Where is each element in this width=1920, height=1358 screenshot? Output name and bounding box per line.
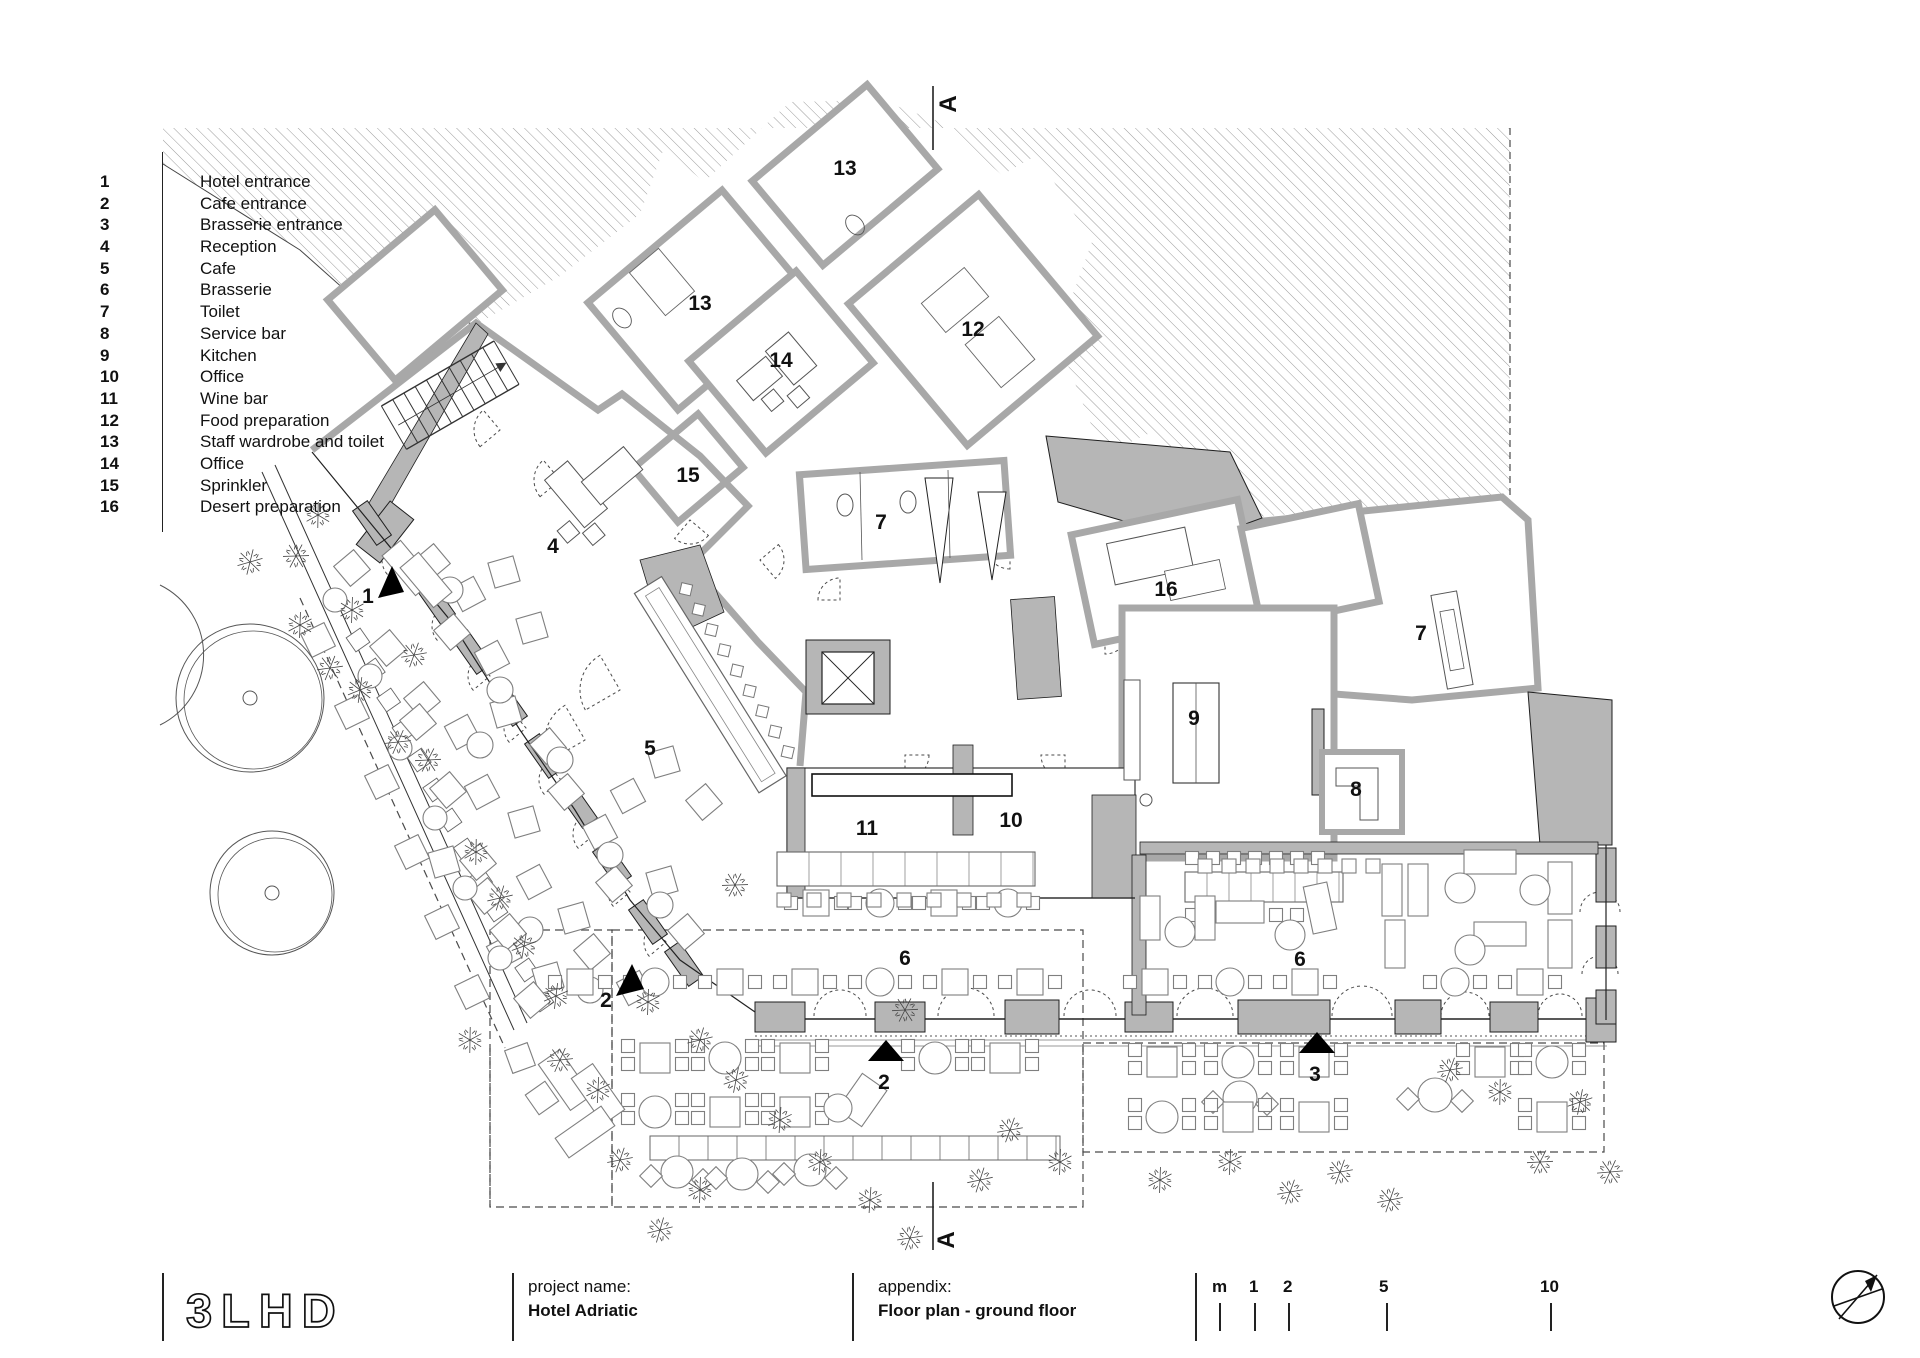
scale-tick — [1254, 1303, 1256, 1331]
legend-number: 3 — [100, 215, 200, 235]
legend-label: Reception — [200, 237, 277, 257]
scale-tick — [1386, 1303, 1388, 1331]
room-label-6-west: 6 — [899, 947, 911, 970]
legend-row: 16Desert preparation — [100, 497, 384, 519]
legend-label: Food preparation — [200, 411, 329, 431]
legend-row: 3Brasserie entrance — [100, 215, 384, 237]
titlebar-divider — [1195, 1273, 1197, 1341]
legend-label: Service bar — [200, 324, 286, 344]
legend: 1Hotel entrance 2Cafe entrance 3Brasseri… — [100, 172, 384, 519]
legend-row: 9Kitchen — [100, 346, 384, 368]
scale-tick — [1550, 1303, 1552, 1331]
legend-label: Brasserie — [200, 280, 272, 300]
legend-row: 4Reception — [100, 237, 384, 259]
appendix-label: appendix: — [878, 1277, 952, 1297]
legend-row: 13Staff wardrobe and toilet — [100, 432, 384, 454]
scale-mark-5: 5 — [1379, 1277, 1388, 1297]
legend-row: 15Sprinkler — [100, 476, 384, 498]
section-letter-top: A — [935, 95, 962, 112]
entrance-label-2-west: 2 — [600, 989, 612, 1012]
room-label-7-center: 7 — [875, 511, 887, 534]
legend-label: Cafe — [200, 259, 236, 279]
legend-row: 6Brasserie — [100, 280, 384, 302]
legend-label: Staff wardrobe and toilet — [200, 432, 384, 452]
legend-number: 15 — [100, 476, 200, 496]
legend-number: 7 — [100, 302, 200, 322]
legend-label: Cafe entrance — [200, 194, 307, 214]
room-label-6-east: 6 — [1294, 948, 1306, 971]
legend-row: 1Hotel entrance — [100, 172, 384, 194]
legend-number: 8 — [100, 324, 200, 344]
legend-label: Wine bar — [200, 389, 268, 409]
room-label-13-upper: 13 — [833, 157, 856, 180]
scale-unit: m — [1212, 1277, 1227, 1297]
scale-mark-1: 1 — [1249, 1277, 1258, 1297]
legend-row: 10Office — [100, 367, 384, 389]
section-letter-bottom: A — [933, 1231, 960, 1248]
legend-label: Brasserie entrance — [200, 215, 343, 235]
entrance-arrow-2-south — [868, 1040, 904, 1061]
room-label-10: 10 — [999, 809, 1022, 832]
legend-number: 4 — [100, 237, 200, 257]
project-name-value: Hotel Adriatic — [528, 1301, 638, 1321]
legend-number: 10 — [100, 367, 200, 387]
section-line-a-bottom: A — [933, 1182, 960, 1250]
legend-number: 14 — [100, 454, 200, 474]
legend-label: Hotel entrance — [200, 172, 311, 192]
legend-number: 9 — [100, 346, 200, 366]
room-label-16: 16 — [1154, 578, 1177, 601]
scale-tick — [1219, 1303, 1221, 1331]
entrance-label-3: 3 — [1309, 1063, 1321, 1086]
title-bar: project name: Hotel Adriatic appendix: F… — [0, 1265, 1920, 1358]
legend-number: 5 — [100, 259, 200, 279]
legend-number: 6 — [100, 280, 200, 300]
scale-tick — [1288, 1303, 1290, 1331]
entrance-label-2-south: 2 — [878, 1071, 890, 1094]
legend-row: 12Food preparation — [100, 411, 384, 433]
scale-mark-2: 2 — [1283, 1277, 1292, 1297]
section-line-a-top: A — [933, 86, 962, 150]
scale-mark-10: 10 — [1540, 1277, 1559, 1297]
legend-row: 14Office — [100, 454, 384, 476]
legend-label: Office — [200, 454, 244, 474]
room-label-15: 15 — [676, 464, 700, 487]
floor-plan-page: { "legend": { "items": [ {"num":"1","lab… — [0, 0, 1920, 1358]
legend-number: 13 — [100, 432, 200, 452]
entrance-label-1: 1 — [362, 585, 374, 608]
room-label-14: 14 — [769, 349, 793, 372]
legend-row: 2Cafe entrance — [100, 194, 384, 216]
room-label-5: 5 — [644, 737, 656, 760]
legend-label: Office — [200, 367, 244, 387]
legend-label: Toilet — [200, 302, 240, 322]
project-name-label: project name: — [528, 1277, 631, 1297]
titlebar-divider — [162, 1273, 164, 1341]
legend-row: 11Wine bar — [100, 389, 384, 411]
room-label-4: 4 — [547, 535, 559, 558]
room-label-11: 11 — [856, 817, 879, 840]
titlebar-divider — [512, 1273, 514, 1341]
legend-number: 16 — [100, 497, 200, 517]
appendix-value: Floor plan - ground floor — [878, 1301, 1076, 1321]
room-label-7-east: 7 — [1415, 622, 1427, 645]
legend-number: 11 — [100, 389, 200, 409]
room-label-13-lower: 13 — [688, 292, 711, 315]
legend-number: 12 — [100, 411, 200, 431]
legend-label: Kitchen — [200, 346, 257, 366]
legend-label: Sprinkler — [200, 476, 267, 496]
legend-row: 7Toilet — [100, 302, 384, 324]
room-label-12: 12 — [961, 318, 984, 341]
legend-number: 1 — [100, 172, 200, 192]
legend-number: 2 — [100, 194, 200, 214]
legend-row: 5Cafe — [100, 259, 384, 281]
room-label-8: 8 — [1350, 778, 1362, 801]
legend-label: Desert preparation — [200, 497, 341, 517]
legend-row: 8Service bar — [100, 324, 384, 346]
titlebar-divider — [852, 1273, 854, 1341]
room-label-9: 9 — [1188, 707, 1200, 730]
